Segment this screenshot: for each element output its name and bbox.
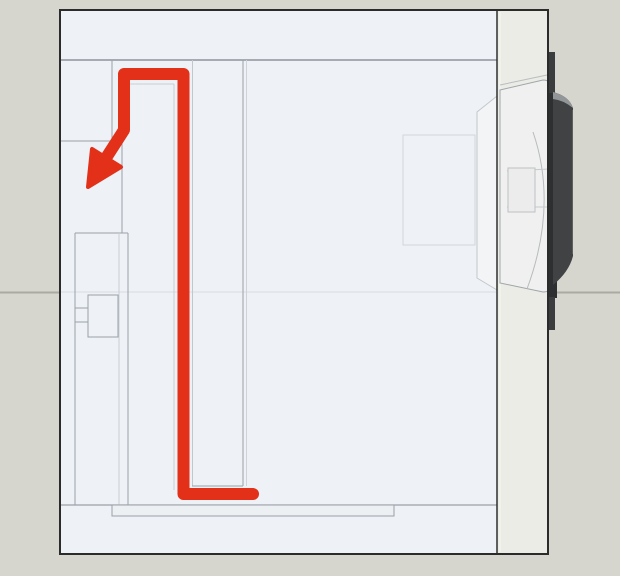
driver-flange-bottom-tab <box>549 297 555 330</box>
diagram-canvas <box>0 0 620 576</box>
cabinet-interior <box>60 10 548 554</box>
voice-coil-block <box>508 168 535 212</box>
driver-basket-xray <box>477 96 497 290</box>
magnet-body <box>553 92 573 285</box>
bottom-spacer-board <box>112 505 394 516</box>
diagram-stage <box>0 0 620 576</box>
crossover-block <box>88 295 118 337</box>
driver-flange-top-tab <box>549 52 555 97</box>
